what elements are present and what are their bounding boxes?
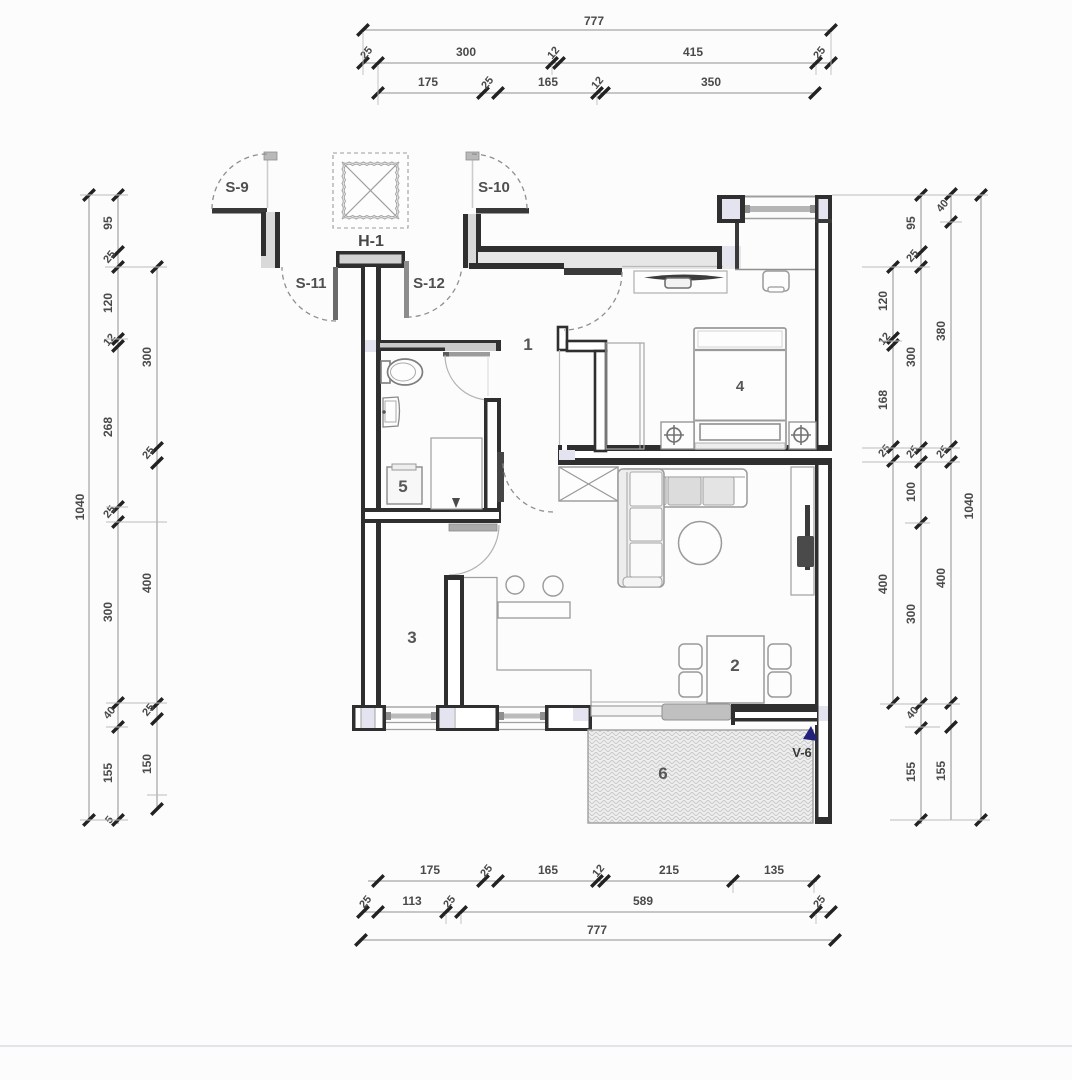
svg-text:400: 400 (876, 574, 890, 594)
svg-text:380: 380 (934, 321, 948, 341)
svg-text:6: 6 (658, 764, 667, 783)
svg-text:168: 168 (876, 390, 890, 410)
svg-text:V-6: V-6 (792, 745, 812, 760)
svg-text:268: 268 (101, 417, 115, 437)
svg-text:350: 350 (701, 75, 721, 89)
svg-text:400: 400 (934, 568, 948, 588)
svg-text:300: 300 (140, 347, 154, 367)
svg-text:300: 300 (904, 604, 918, 624)
svg-text:120: 120 (101, 293, 115, 313)
svg-text:175: 175 (420, 863, 440, 877)
svg-text:1: 1 (523, 335, 532, 354)
svg-text:150: 150 (140, 754, 154, 774)
svg-text:1040: 1040 (962, 492, 976, 519)
svg-text:215: 215 (659, 863, 679, 877)
svg-text:300: 300 (456, 45, 476, 59)
svg-text:S-9: S-9 (225, 179, 248, 196)
svg-text:300: 300 (904, 347, 918, 367)
svg-text:H-1: H-1 (358, 233, 384, 250)
svg-text:777: 777 (587, 923, 607, 937)
svg-text:155: 155 (904, 762, 918, 782)
svg-text:S-11: S-11 (296, 275, 327, 292)
svg-text:155: 155 (101, 763, 115, 783)
svg-text:300: 300 (101, 602, 115, 622)
svg-text:165: 165 (538, 863, 558, 877)
svg-text:777: 777 (584, 14, 604, 28)
svg-text:95: 95 (101, 216, 115, 230)
svg-text:S-12: S-12 (413, 275, 445, 292)
svg-text:135: 135 (764, 863, 784, 877)
svg-text:113: 113 (402, 894, 422, 908)
svg-text:155: 155 (934, 761, 948, 781)
svg-text:100: 100 (904, 482, 918, 502)
svg-text:175: 175 (418, 75, 438, 89)
svg-text:S-10: S-10 (478, 179, 510, 196)
svg-text:120: 120 (876, 291, 890, 311)
svg-text:400: 400 (140, 573, 154, 593)
svg-text:1040: 1040 (73, 493, 87, 520)
svg-text:415: 415 (683, 45, 703, 59)
svg-text:2: 2 (730, 656, 739, 675)
svg-text:3: 3 (407, 628, 416, 647)
svg-text:4: 4 (736, 378, 745, 395)
svg-text:95: 95 (904, 216, 918, 230)
svg-text:589: 589 (633, 894, 653, 908)
svg-text:165: 165 (538, 75, 558, 89)
svg-text:5: 5 (398, 477, 407, 496)
